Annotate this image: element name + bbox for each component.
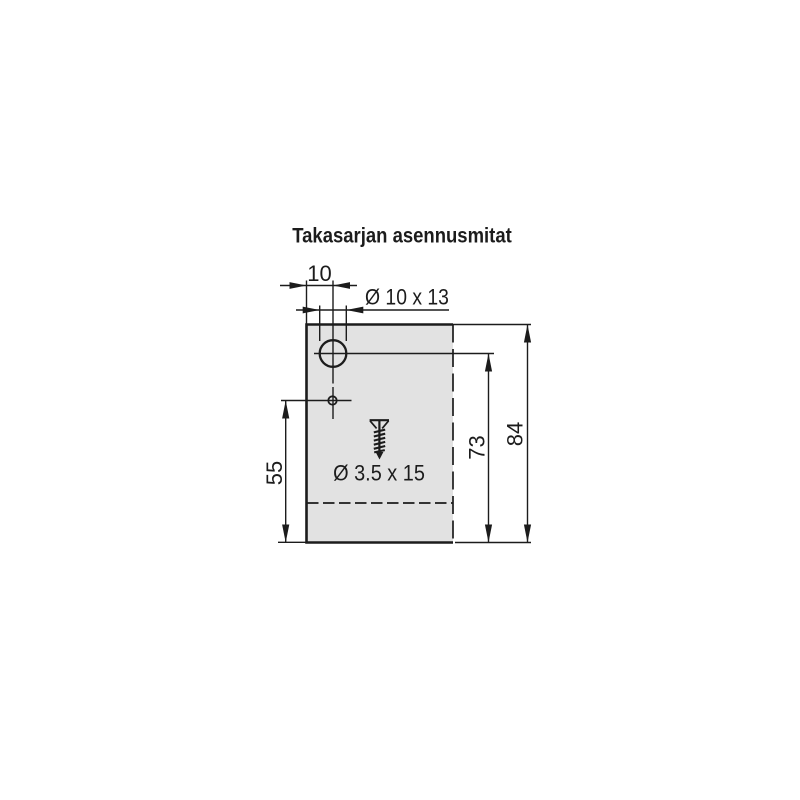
svg-text:10: 10	[307, 261, 331, 286]
svg-text:84: 84	[503, 422, 528, 446]
svg-text:55: 55	[262, 461, 287, 485]
svg-text:73: 73	[465, 435, 490, 459]
svg-text:Ø 10 x 13: Ø 10 x 13	[365, 285, 449, 309]
svg-text:Takasarjan asennusmitat: Takasarjan asennusmitat	[292, 224, 512, 248]
svg-text:Ø 3.5 x 15: Ø 3.5 x 15	[333, 462, 425, 486]
